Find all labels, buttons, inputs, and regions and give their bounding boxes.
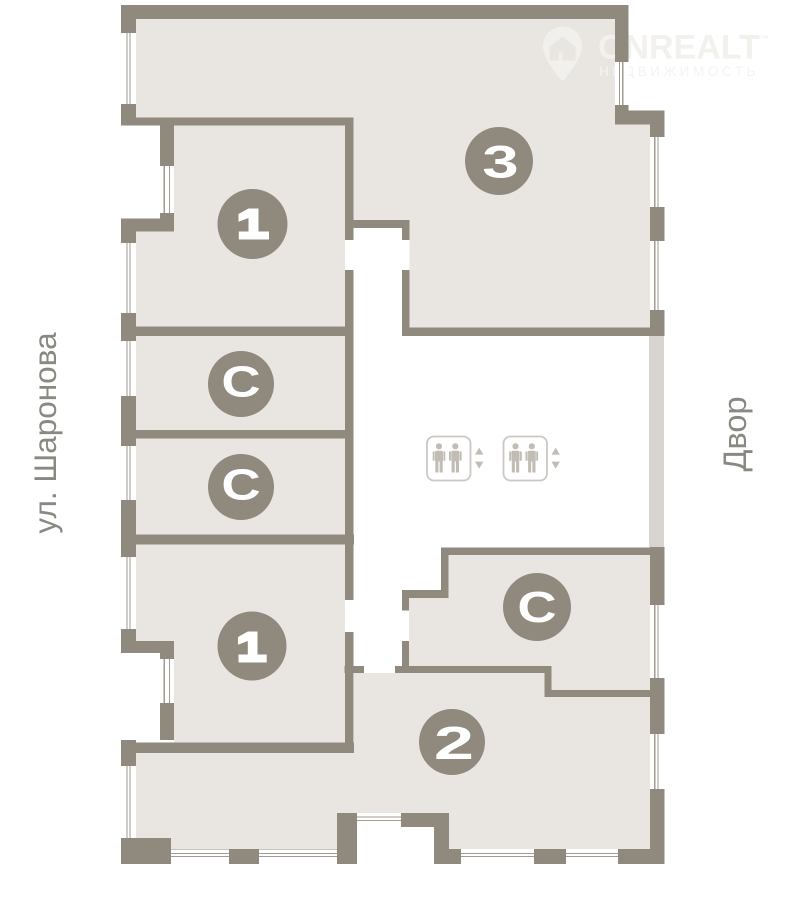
svg-text:2: 2 bbox=[434, 717, 474, 769]
svg-text:™: ™ bbox=[760, 34, 769, 44]
svg-text:С: С bbox=[517, 583, 556, 632]
svg-text:Двор: Двор bbox=[717, 396, 753, 471]
svg-text:3: 3 bbox=[482, 136, 518, 187]
svg-text:С: С bbox=[221, 461, 260, 510]
svg-text:С: С bbox=[221, 358, 260, 407]
svg-text:ул. Шаронова: ул. Шаронова bbox=[27, 332, 63, 534]
